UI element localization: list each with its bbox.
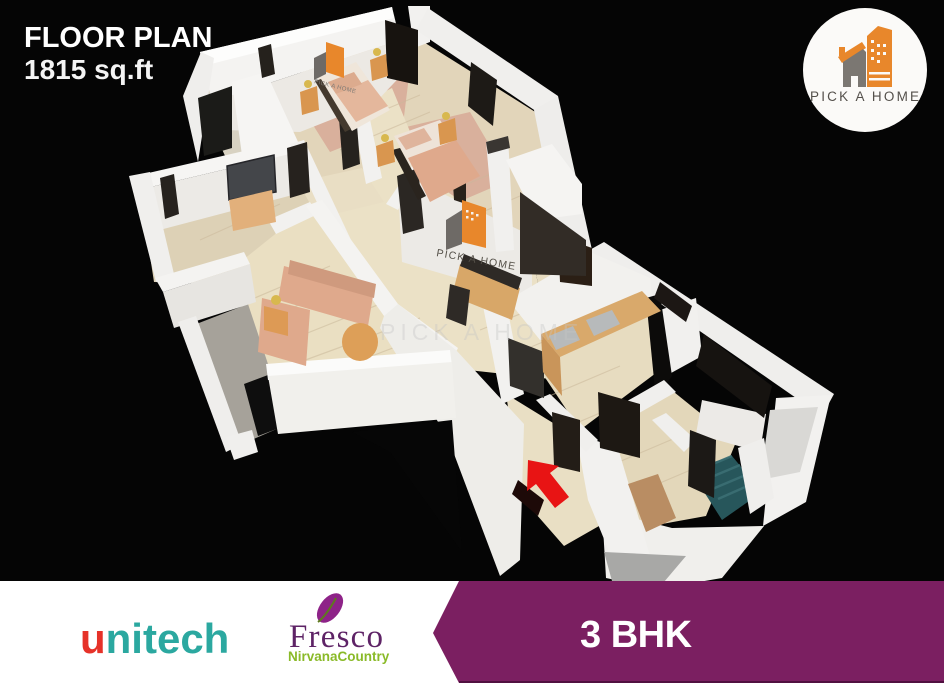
svg-text:FLOOR PLAN: FLOOR PLAN bbox=[24, 22, 213, 54]
svg-text:unitech: unitech bbox=[80, 615, 229, 662]
svg-text:NirvanaCountry: NirvanaCountry bbox=[288, 649, 390, 664]
svg-text:PICK A HOME: PICK A HOME bbox=[810, 89, 921, 104]
svg-text:1815 sq.ft: 1815 sq.ft bbox=[24, 54, 153, 85]
svg-text:PICK A HOME: PICK A HOME bbox=[380, 319, 583, 345]
svg-text:3 BHK: 3 BHK bbox=[580, 614, 693, 656]
